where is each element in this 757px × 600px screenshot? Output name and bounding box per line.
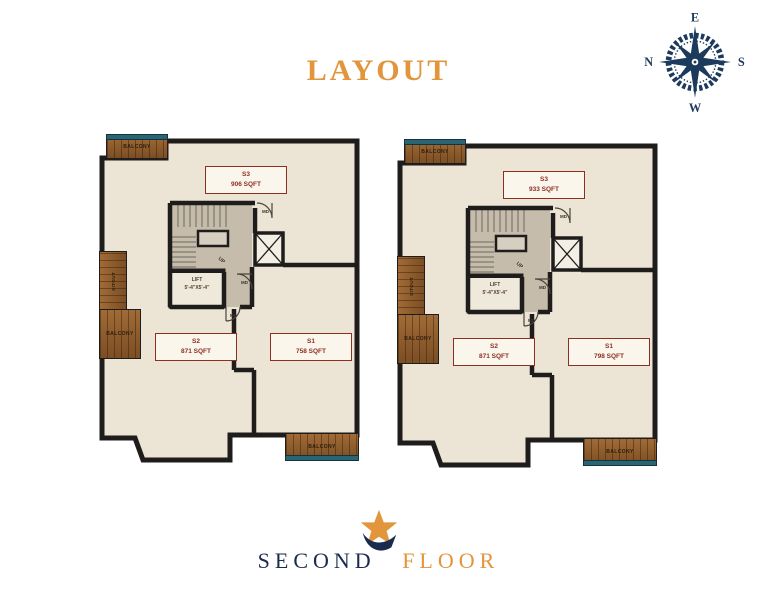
- balcony-edge: [285, 455, 359, 461]
- floor-title: SECOND FLOOR: [0, 548, 757, 574]
- room-id: S1: [569, 342, 649, 352]
- balcony-top: BALCONY: [404, 139, 466, 164]
- balcony-label: BALCONY: [421, 149, 449, 155]
- room-area: 906 SQFT: [206, 180, 286, 190]
- sitout-label: SITOUT: [111, 272, 116, 291]
- room-area: 871 SQFT: [156, 347, 236, 357]
- door-label: MD: [528, 318, 536, 323]
- balcony-edge: [404, 139, 466, 145]
- balcony-label: BALCONY: [123, 144, 151, 150]
- room-id: S2: [156, 337, 236, 347]
- room-area: 871 SQFT: [454, 352, 534, 362]
- room-id: S1: [271, 337, 351, 347]
- door-label: MD: [230, 313, 238, 318]
- balcony-label: BALCONY: [404, 336, 432, 342]
- compass-left-label: N: [644, 55, 653, 69]
- compass-right-label: S: [738, 55, 745, 69]
- lift-size: 5'-4"X5'-4": [472, 289, 518, 297]
- room-label-s2: S2 871 SQFT: [155, 333, 237, 361]
- balcony-label: BALCONY: [308, 444, 336, 450]
- compass-bottom-label: W: [689, 101, 702, 115]
- room-area: 933 SQFT: [504, 185, 584, 195]
- room-label-s3: S3 933 SQFT: [503, 171, 585, 199]
- balcony-left: BALCONY: [99, 309, 141, 359]
- balcony-top: BALCONY: [106, 134, 168, 159]
- door-label: MD: [241, 280, 249, 285]
- room-id: S3: [504, 175, 584, 185]
- balcony-edge: [106, 134, 168, 140]
- balcony-bottom: BALCONY: [583, 438, 657, 466]
- lift-label: LIFT 5'-4"X5'-4": [174, 276, 220, 292]
- door-label: MD: [539, 285, 547, 290]
- floor-title-word2: FLOOR: [402, 548, 499, 573]
- room-label-s3: S3 906 SQFT: [205, 166, 287, 194]
- compass-top-label: E: [691, 10, 699, 24]
- door-label: MD: [262, 209, 270, 214]
- floorplan-right: MD MD MD UP BALCONY SITOUT BALCONY BALCO…: [398, 138, 658, 470]
- door-label: MD: [560, 214, 568, 219]
- compass-rose-icon: E S W N: [643, 8, 747, 116]
- room-label-s2: S2 871 SQFT: [453, 338, 535, 366]
- balcony-label: BALCONY: [106, 331, 134, 337]
- star-logo-icon: [356, 508, 402, 552]
- sitout-label: SITOUT: [409, 277, 414, 296]
- room-label-s1: S1 798 SQFT: [568, 338, 650, 366]
- sitout-strip: SITOUT: [99, 251, 127, 311]
- room-label-s1: S1 758 SQFT: [270, 333, 352, 361]
- lift-size: 5'-4"X5'-4": [174, 284, 220, 292]
- lift-title: LIFT: [174, 276, 220, 284]
- sitout-strip: SITOUT: [397, 256, 425, 316]
- layout-page: { "title": "LAYOUT", "compass": { "top":…: [0, 0, 757, 600]
- balcony-edge: [583, 460, 657, 466]
- floorplan-left: MD MD MD UP BALCONY SITOUT BALCONY BALCO…: [100, 133, 360, 465]
- room-area: 758 SQFT: [271, 347, 351, 357]
- balcony-left: BALCONY: [397, 314, 439, 364]
- balcony-label: BALCONY: [606, 449, 634, 455]
- room-area: 798 SQFT: [569, 352, 649, 362]
- room-id: S3: [206, 170, 286, 180]
- floor-title-word1: SECOND: [258, 548, 376, 573]
- lift-title: LIFT: [472, 281, 518, 289]
- lift-label: LIFT 5'-4"X5'-4": [472, 281, 518, 297]
- room-id: S2: [454, 342, 534, 352]
- balcony-bottom: BALCONY: [285, 433, 359, 461]
